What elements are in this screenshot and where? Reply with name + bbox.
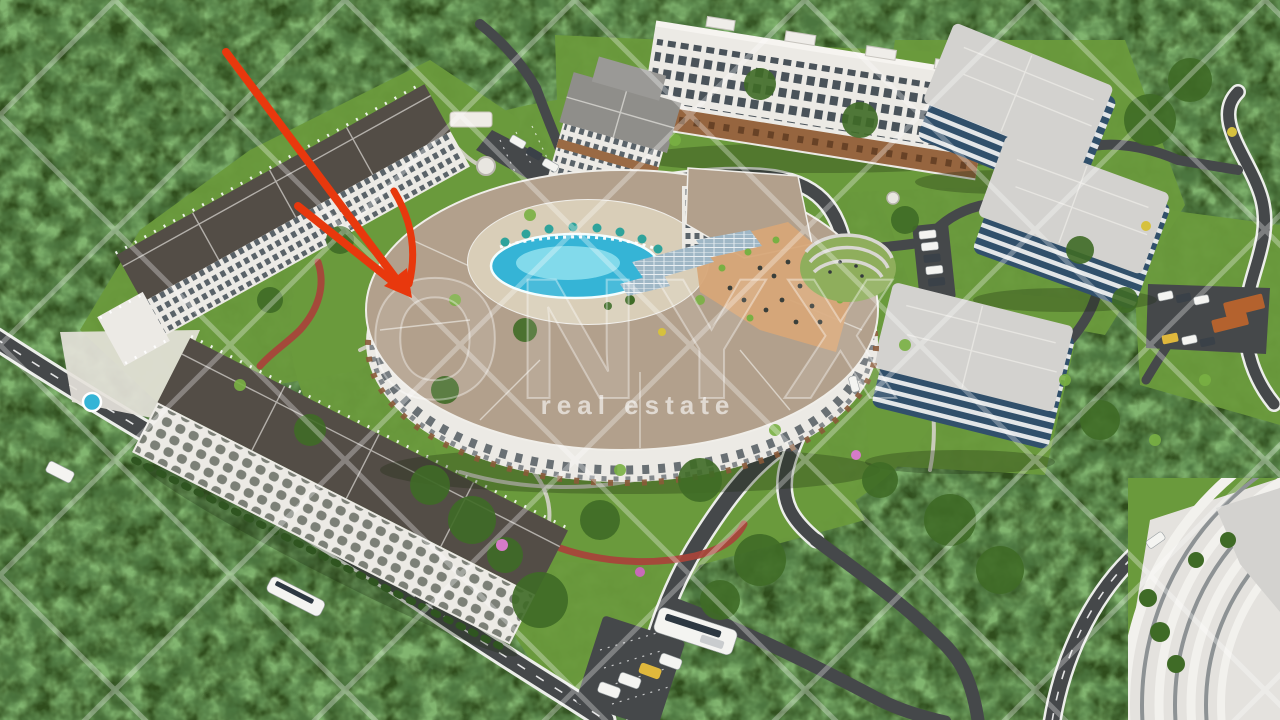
watermark: ONYX real estate (0, 0, 1280, 720)
scene: ONYX real estate (0, 0, 1280, 720)
watermark-subtitle: real estate (541, 390, 736, 420)
aerial-render: ONYX real estate (0, 0, 1280, 720)
